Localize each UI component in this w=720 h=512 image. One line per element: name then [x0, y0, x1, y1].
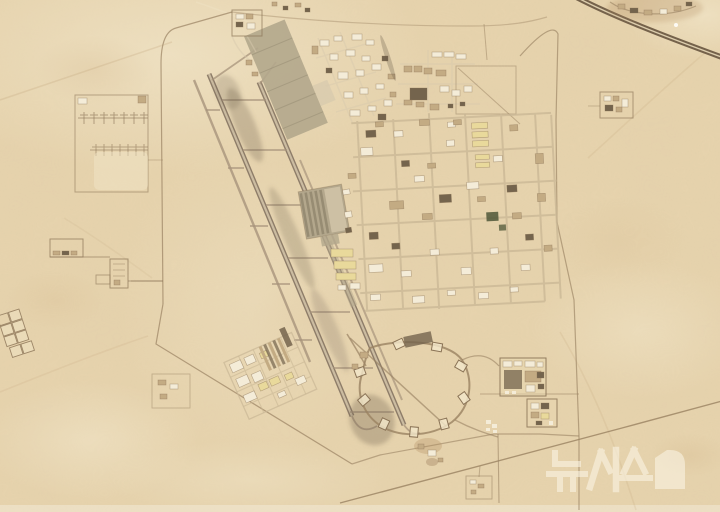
newsis-logo-icon	[655, 450, 685, 489]
vegetation-patch-small	[499, 224, 506, 230]
bottom-edge-highlight	[0, 505, 720, 512]
large-dark-building	[410, 88, 427, 100]
dark-roof-building	[504, 370, 522, 389]
satellite-image: 뉴시스	[0, 0, 720, 512]
compound-2	[527, 399, 557, 427]
white-dot	[674, 23, 678, 27]
vegetation-patch	[486, 212, 498, 222]
satellite-map	[0, 0, 720, 512]
compound-1	[500, 358, 546, 396]
